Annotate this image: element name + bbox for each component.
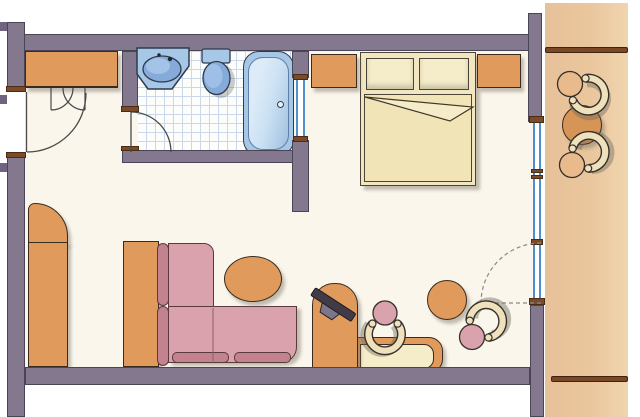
balcony-chair-top xyxy=(549,63,613,121)
corner-chair xyxy=(451,295,513,358)
washbasin xyxy=(137,48,189,89)
faucet-dot-1 xyxy=(157,53,160,56)
balcony-chair-bottom xyxy=(552,127,616,188)
faucet-dot-2 xyxy=(168,57,172,61)
bed-sheet-fold xyxy=(365,97,473,121)
tv-icon xyxy=(306,288,356,329)
plan-symbols-layer xyxy=(0,0,640,417)
floor-plan xyxy=(0,0,640,417)
desk-chair xyxy=(366,301,402,352)
balcony-door-swing xyxy=(481,243,541,303)
toilet xyxy=(202,49,235,98)
closet-door-swings xyxy=(51,88,85,110)
bathroom-door-swing xyxy=(131,112,171,152)
entry-door-swing xyxy=(27,92,87,152)
